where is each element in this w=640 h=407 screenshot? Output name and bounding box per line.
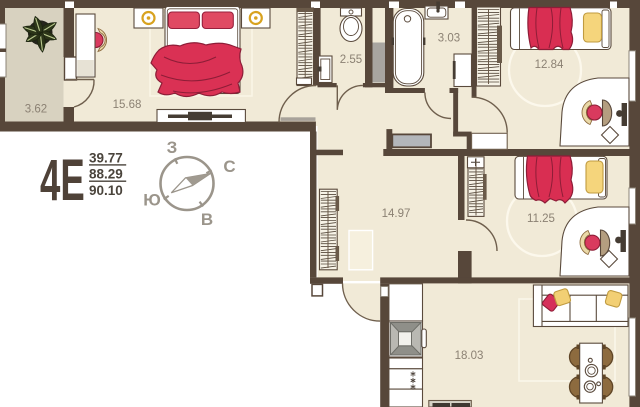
svg-text:Ю: Ю — [143, 191, 161, 210]
svg-text:39.77: 39.77 — [89, 150, 123, 165]
svg-text:2.55: 2.55 — [340, 54, 362, 66]
svg-text:12.84: 12.84 — [535, 59, 564, 71]
svg-text:В: В — [201, 210, 213, 229]
svg-text:14.97: 14.97 — [382, 208, 411, 220]
svg-text:11.25: 11.25 — [527, 213, 555, 225]
svg-text:4Е: 4Е — [40, 149, 85, 214]
svg-text:3.03: 3.03 — [438, 33, 460, 45]
svg-text:88.29: 88.29 — [89, 167, 123, 182]
svg-text:15.68: 15.68 — [113, 99, 142, 111]
svg-text:3.62: 3.62 — [25, 104, 47, 116]
svg-text:З: З — [167, 138, 178, 157]
svg-text:90.10: 90.10 — [89, 183, 123, 198]
svg-text:С: С — [223, 157, 235, 176]
svg-text:18.03: 18.03 — [455, 350, 484, 362]
